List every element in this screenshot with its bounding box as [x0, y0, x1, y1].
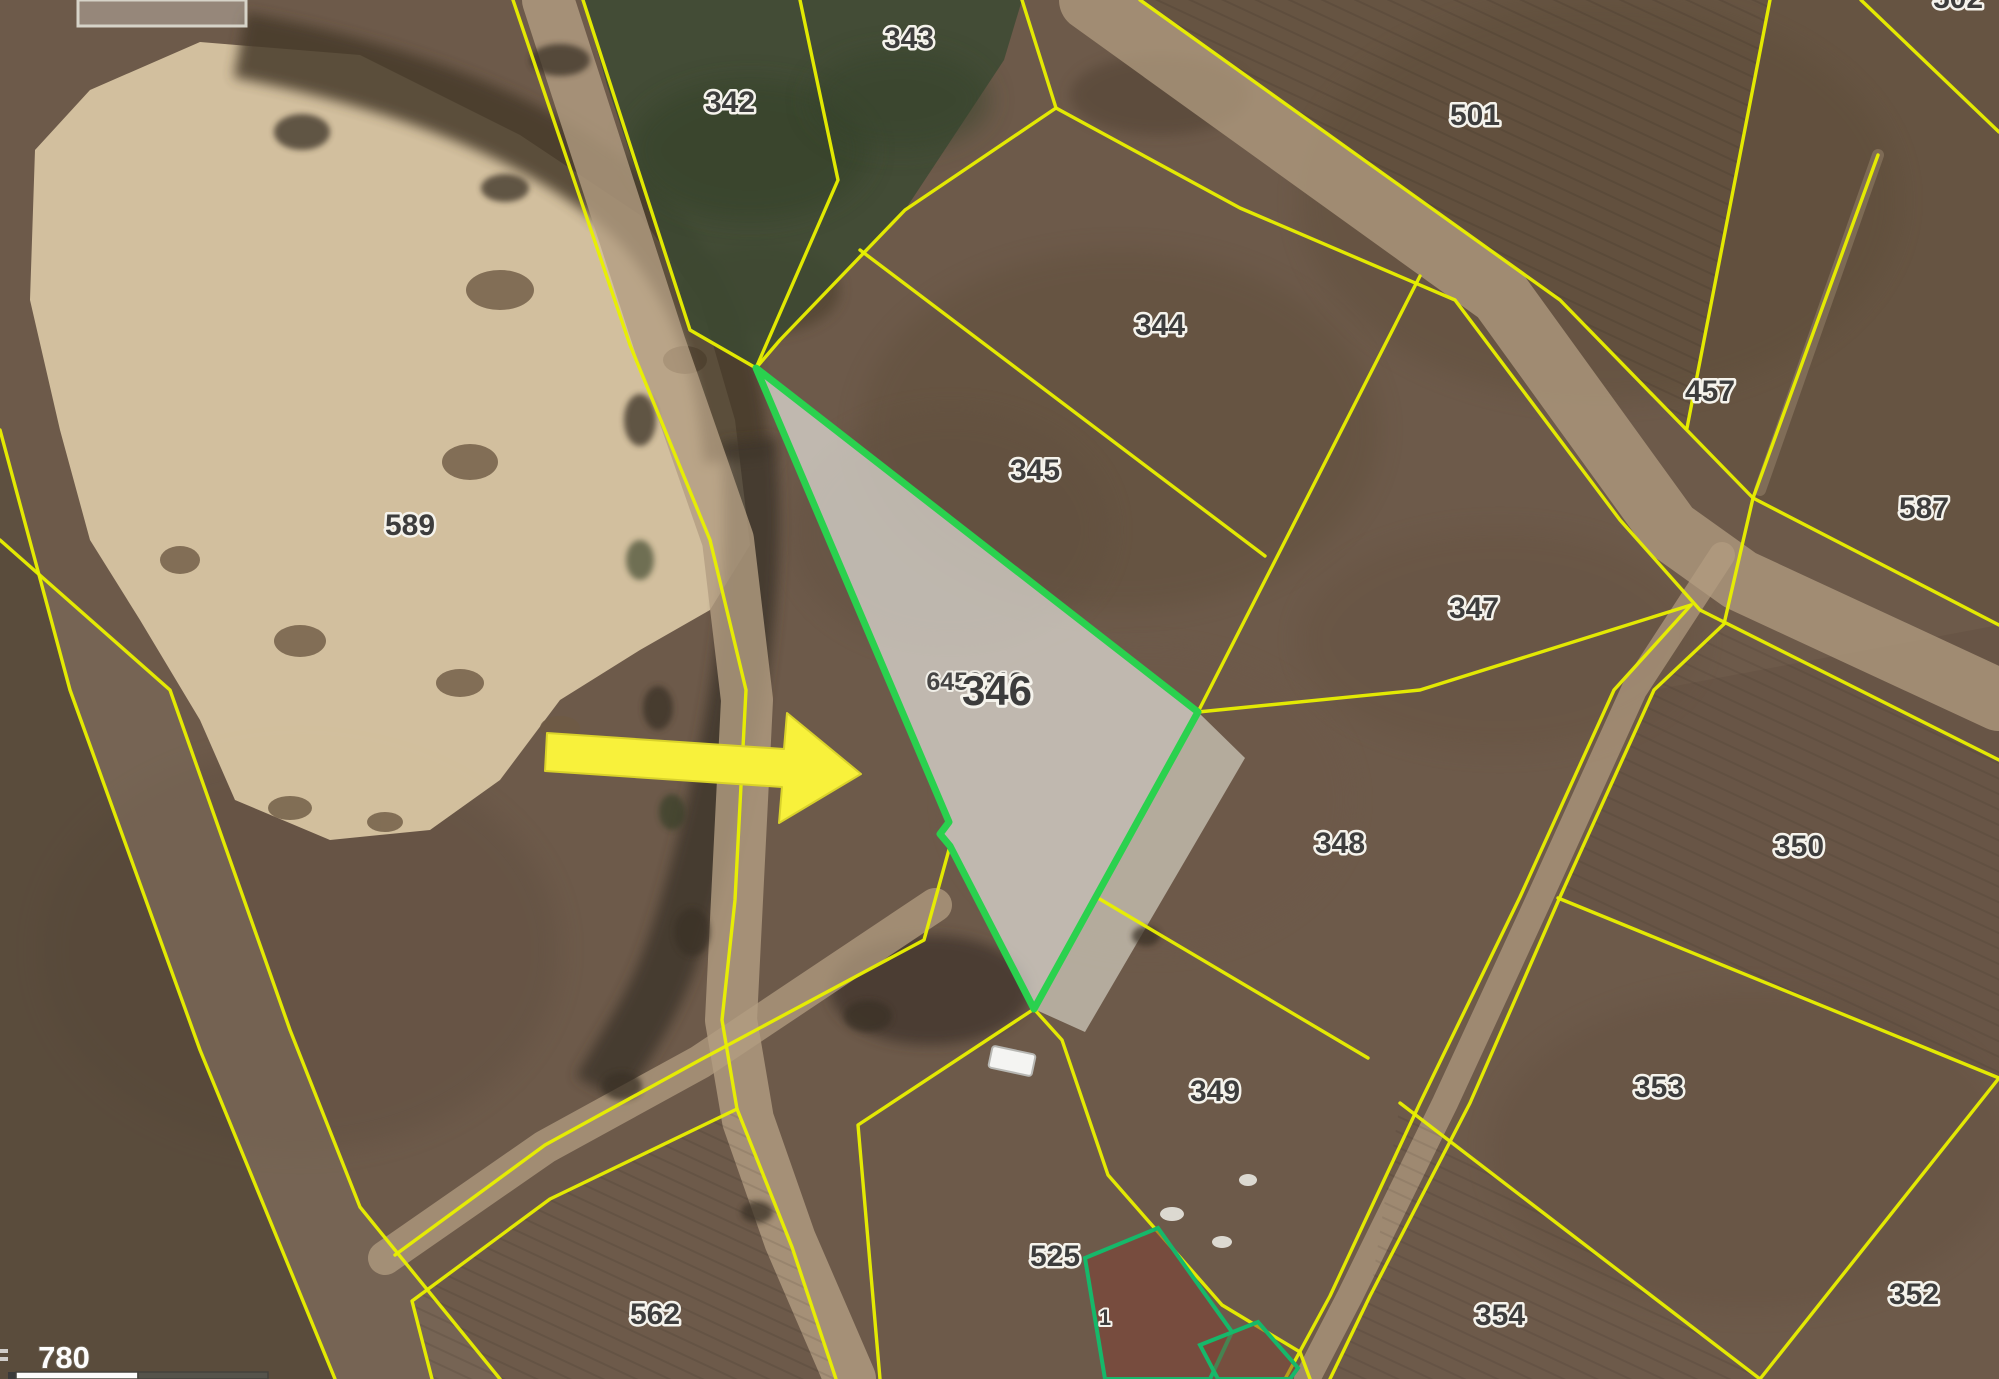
parcel-label-589: 589: [385, 509, 435, 542]
parcel-label-353: 353: [1634, 1071, 1684, 1104]
parcel-label-342: 342: [705, 86, 755, 119]
shed-footprint: [78, 0, 246, 26]
parcel-label-525: 525: [1030, 1240, 1080, 1273]
parcel-label-457: 457: [1685, 375, 1735, 408]
scale-bar-white-segment: [16, 1372, 138, 1379]
parcel-label-348: 348: [1315, 827, 1365, 860]
scale-text: 780: [38, 1340, 90, 1375]
map-viewport[interactable]: 342 343 344 345 347 348 349 350 352 353 …: [0, 0, 1999, 1379]
parcel-label-354: 354: [1475, 1299, 1525, 1332]
parcel-label-344: 344: [1135, 309, 1185, 342]
parcel-label-343: 343: [884, 22, 934, 55]
parcel-label-501: 501: [1450, 99, 1500, 132]
parcel-label-347: 347: [1449, 592, 1499, 625]
scale-bar-tick: [8, 1372, 16, 1379]
parcel-label-350: 350: [1774, 830, 1824, 863]
map-canvas[interactable]: 342 343 344 345 347 348 349 350 352 353 …: [0, 0, 1999, 1379]
parcel-label-352: 352: [1889, 1278, 1939, 1311]
parcel-label-345: 345: [1010, 454, 1060, 487]
parcel-label-partial-top-right: 502: [1933, 0, 1983, 15]
parcel-label-346: 346: [962, 667, 1032, 714]
parcel-label-349: 349: [1190, 1075, 1240, 1108]
parcel-label-587: 587: [1899, 492, 1949, 525]
scale-bar-dark-segment: [138, 1372, 268, 1379]
parcel-label-562: 562: [630, 1298, 680, 1331]
building-label-1: 1: [1099, 1305, 1111, 1330]
